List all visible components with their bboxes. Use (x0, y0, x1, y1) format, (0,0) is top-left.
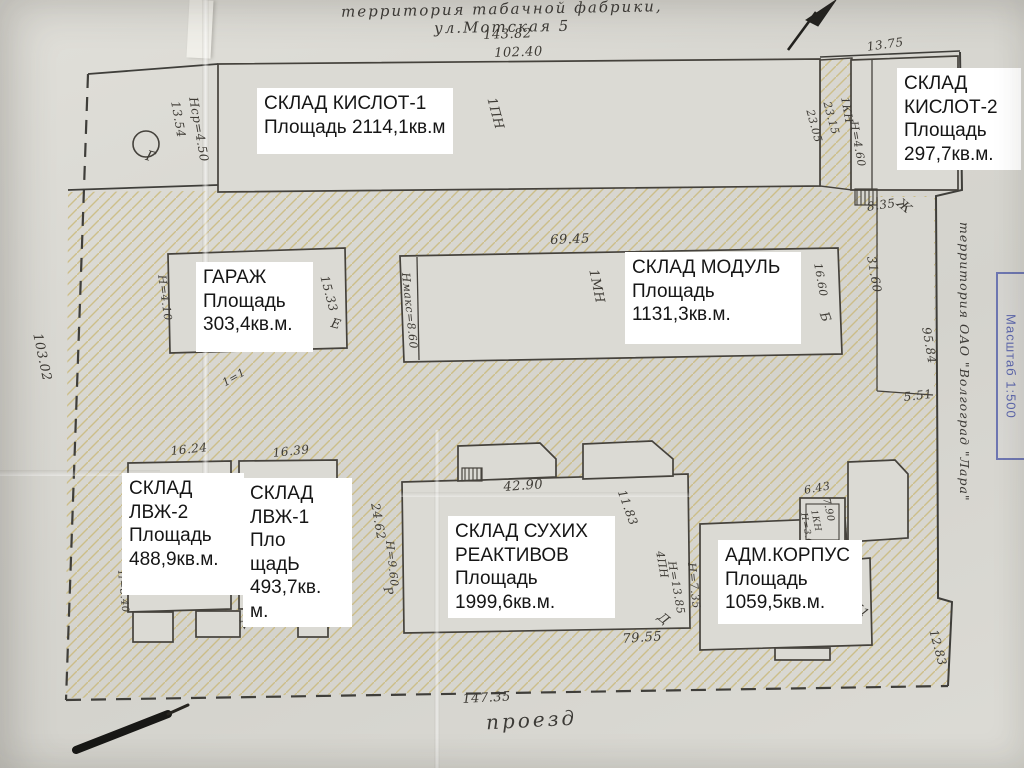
lvzh2-dock-1 (133, 612, 173, 642)
label-sklad-suhih-reaktivov: СКЛАД СУХИХ РЕАКТИВОВ Площадь 1999,6кв.м… (448, 516, 615, 618)
label-sklad-kislot-2: СКЛАД КИСЛОТ-2 Площадь 297,7кв.м. (897, 68, 1021, 170)
dim-5-51: 5.51 (903, 387, 933, 404)
dim-69-45: 69.45 (550, 232, 590, 248)
label-sklad-lvzh-2: СКЛАД ЛВЖ-2 Площадь 488,9кв.м. (122, 473, 244, 595)
label-adm-korpus: АДМ.КОРПУС Площадь 1059,5кв.м. (718, 540, 862, 624)
site-plan-drawing (0, 0, 1024, 768)
adm-step (775, 648, 830, 660)
suhih-bay-2 (583, 441, 673, 479)
right-territory-note: территория ОАО "Волгоград "Лара" (957, 222, 972, 502)
scale-stamp-text: Масштаб 1:500 (1004, 314, 1019, 419)
pen-object (76, 705, 188, 750)
dim-143-82: 143.82 (483, 26, 532, 43)
adm-upper-wing (848, 460, 908, 542)
dim-42-90: 42.90 (503, 477, 544, 495)
lvzh2-dock-2 (196, 611, 240, 637)
label-sklad-kislot-1: СКЛАД КИСЛОТ-1 Площадь 2114,1кв.м (257, 88, 453, 154)
dim-102-40: 102.40 (494, 44, 543, 61)
scanned-site-plan-photo: территория табачной фабрики, ул.Мотская … (0, 0, 1024, 768)
label-sklad-lvzh-1: СКЛАД ЛВЖ-1 Пло щадЬ 493,7кв. м. (243, 478, 352, 627)
north-arrow-icon (788, 0, 836, 50)
dim-79-55: 79.55 (622, 629, 663, 647)
road-label: проезд (485, 706, 577, 735)
scale-stamp: Масштаб 1:500 (996, 272, 1024, 460)
label-garazh: ГАРАЖ Площадь 303,4кв.м. (196, 262, 313, 352)
label-sklad-modul: СКЛАД МОДУЛЬ Площадь 1131,3кв.м. (625, 252, 801, 344)
dim-147-35: 147.35 (462, 689, 511, 707)
